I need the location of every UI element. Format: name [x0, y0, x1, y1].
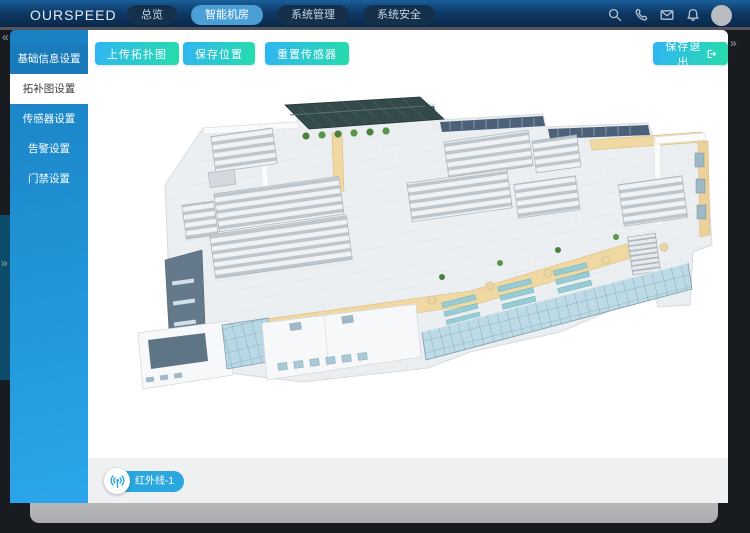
- mail-icon[interactable]: [659, 8, 674, 23]
- phone-icon[interactable]: [633, 8, 648, 23]
- navbar-icon-group: [607, 0, 732, 30]
- tab-smart-room[interactable]: 智能机房: [191, 5, 263, 25]
- sidebar-item-alarm[interactable]: 告警设置: [10, 134, 88, 164]
- app-window: OURSPEED 总览 智能机房 系统管理 系统安全 « » »: [0, 0, 750, 533]
- brand-logo: OURSPEED: [30, 0, 117, 30]
- signal-icon[interactable]: [104, 468, 130, 494]
- save-exit-label: 保存退出: [665, 38, 702, 70]
- bell-icon[interactable]: [685, 8, 700, 23]
- collapse-left-icon[interactable]: «: [2, 31, 9, 43]
- card-base-bar: [30, 503, 718, 523]
- floorplan-image[interactable]: [110, 85, 728, 457]
- save-position-button[interactable]: 保存位置: [183, 42, 255, 65]
- sidebar-item-basic-info[interactable]: 基础信息设置: [10, 44, 88, 74]
- sidebar-item-topology[interactable]: 拓补图设置: [10, 74, 88, 104]
- tab-system-security[interactable]: 系统安全: [363, 5, 435, 25]
- tab-overview[interactable]: 总览: [127, 5, 177, 25]
- logout-icon: [707, 48, 716, 60]
- backdrop-panel-edge: [0, 215, 10, 380]
- search-icon[interactable]: [607, 8, 622, 23]
- expand-right-icon[interactable]: »: [730, 37, 737, 49]
- sensor-tray: [88, 458, 728, 503]
- annex-room-west: [138, 321, 233, 389]
- save-exit-button[interactable]: 保存退出: [653, 42, 728, 65]
- top-navbar: OURSPEED 总览 智能机房 系统管理 系统安全: [0, 0, 750, 30]
- tab-system-management[interactable]: 系统管理: [277, 5, 349, 25]
- nav-tabs: 总览 智能机房 系统管理 系统安全: [127, 5, 435, 25]
- sidebar-item-access[interactable]: 门禁设置: [10, 164, 88, 194]
- settings-sidebar: 基础信息设置 拓补图设置 传感器设置 告警设置 门禁设置: [10, 30, 88, 503]
- reset-sensor-button[interactable]: 重置传感器: [265, 42, 349, 65]
- topology-panel: 上传拓扑图 保存位置 重置传感器 保存退出: [88, 30, 728, 503]
- upload-topology-button[interactable]: 上传拓扑图: [95, 42, 179, 65]
- sidebar-item-sensor[interactable]: 传感器设置: [10, 104, 88, 134]
- expand-mid-icon[interactable]: »: [1, 257, 8, 269]
- user-avatar[interactable]: [711, 5, 732, 26]
